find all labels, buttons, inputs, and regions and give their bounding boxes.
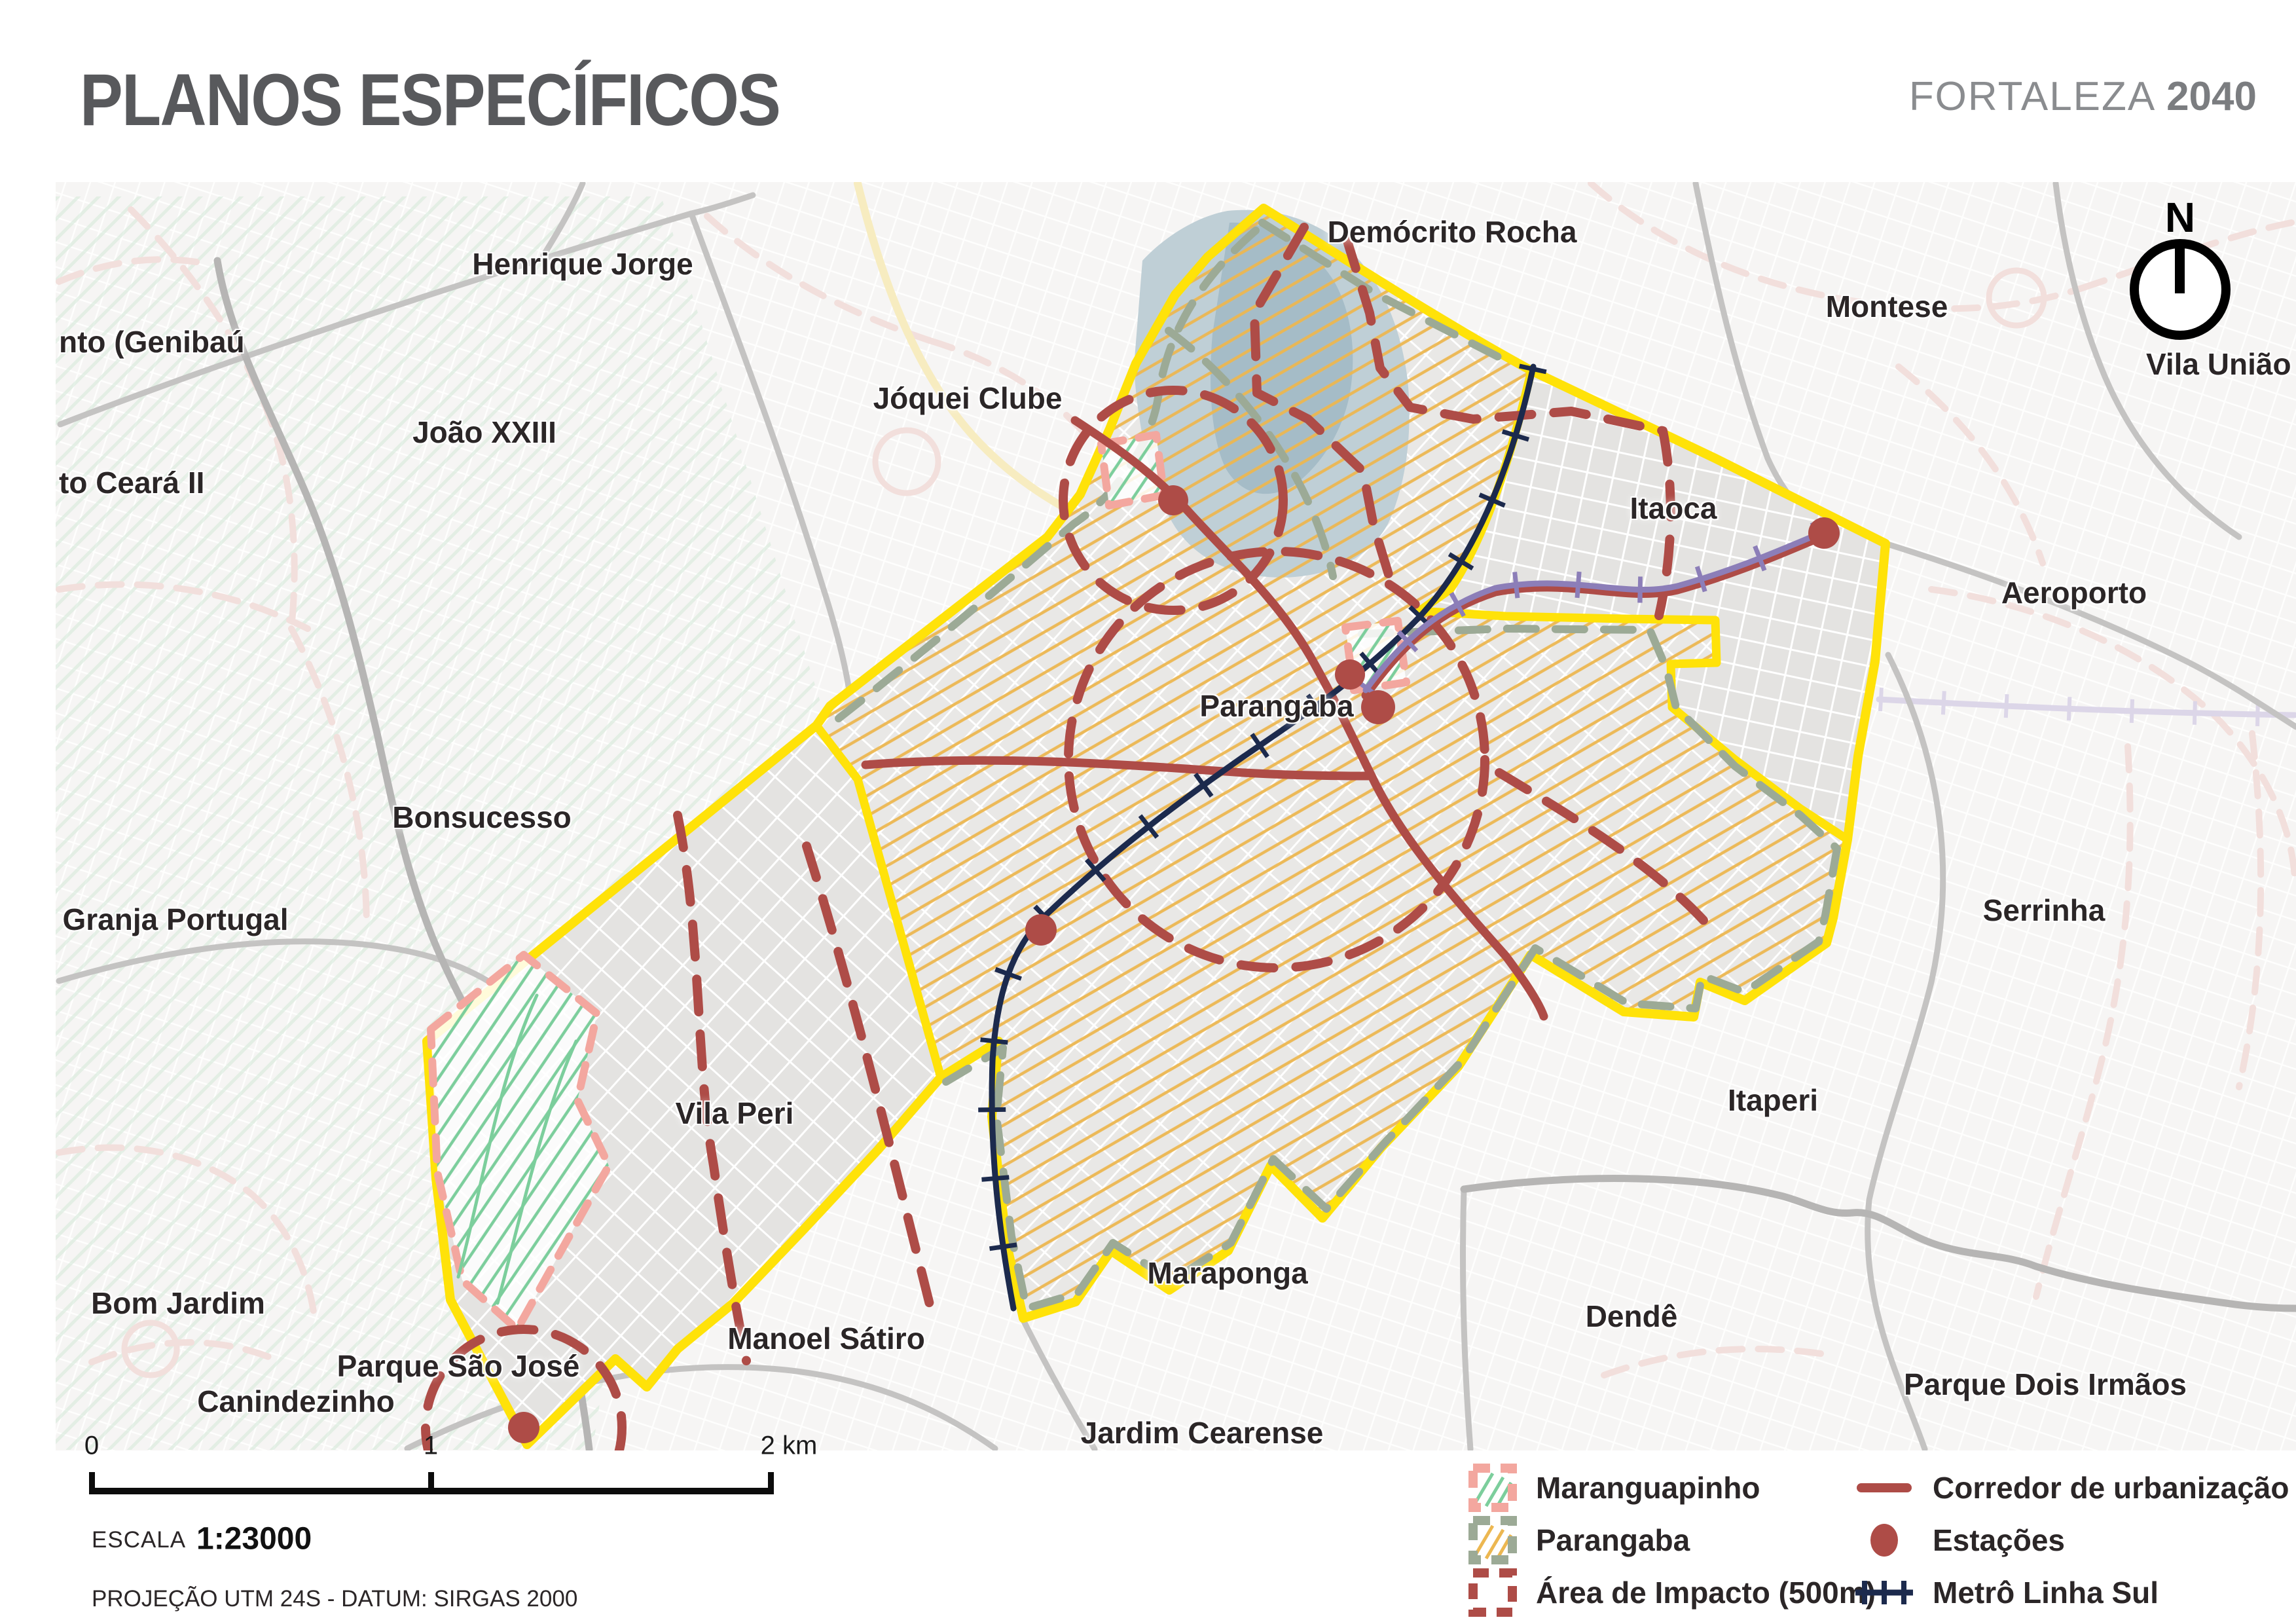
page-title: PLANOS ESPECÍFICOS: [80, 58, 780, 142]
parangaba-swatch-icon: [1467, 1514, 1519, 1566]
map-label-vila-uni-o: Vila União: [2146, 346, 2291, 382]
scalebar-tick-1: 1: [424, 1431, 438, 1461]
projection-text: PROJEÇÃO UTM 24S - DATUM: SIRGAS 2000: [92, 1586, 577, 1612]
metro-swatch-icon: [1853, 1566, 1916, 1619]
scalebar-tickmark: [768, 1472, 774, 1494]
map-label-granja-portugal: Granja Portugal: [62, 902, 288, 937]
map-label-bom-jardim: Bom Jardim: [91, 1285, 265, 1321]
impacto-swatch-icon: [1467, 1566, 1519, 1619]
legend-row-parangaba: Parangaba: [1467, 1514, 1690, 1566]
scale-value: 1:23000: [196, 1521, 312, 1557]
scalebar-tick-0: 0: [84, 1431, 99, 1461]
maranguapinho-swatch-icon: [1467, 1462, 1519, 1514]
legend-label: Corredor de urbanização: [1933, 1470, 2289, 1505]
brand-name: FORTALEZA: [1909, 74, 2154, 119]
legend-row-metro: Metrô Linha Sul: [1853, 1566, 2159, 1619]
map-label-j-quei-clube: Jóquei Clube: [873, 380, 1063, 416]
legend-row-corredor: Corredor de urbanização: [1853, 1462, 2289, 1514]
map-label-montese: Montese: [1826, 289, 1948, 324]
brand-logo: FORTALEZA 2040: [1909, 73, 2257, 120]
legend-label: Parangaba: [1536, 1522, 1690, 1558]
legend-label: Área de Impacto (500m): [1536, 1575, 1876, 1610]
scalebar-tickmark: [428, 1472, 434, 1494]
map-label-nto-geniba-: nto (Genibaú: [59, 324, 245, 360]
map-label-to-cear-ii: to Ceará II: [59, 465, 204, 500]
brand-year: 2040: [2166, 74, 2257, 119]
map-label-serrinha: Serrinha: [1983, 893, 2105, 928]
legend-row-maranguapinho: Maranguapinho: [1467, 1462, 1760, 1514]
map-label-dend-: Dendê: [1586, 1299, 1678, 1334]
map-label-henrique-jorge: Henrique Jorge: [472, 246, 693, 282]
map-label-canindezinho: Canindezinho: [197, 1384, 395, 1419]
legend-label: Metrô Linha Sul: [1933, 1575, 2159, 1610]
legend-row-estacoes: Estações: [1853, 1514, 2065, 1566]
map-label-aeroporto: Aeroporto: [2001, 575, 2147, 610]
map-label-maraponga: Maraponga: [1147, 1255, 1307, 1291]
map-label-parangaba: Parangaba: [1199, 688, 1353, 724]
legend-row-impacto: Área de Impacto (500m): [1467, 1566, 1876, 1619]
legend-label: Maranguapinho: [1536, 1470, 1760, 1505]
north-arrow-icon: [2134, 244, 2226, 335]
map-label-dem-crito-rocha: Demócrito Rocha: [1328, 214, 1577, 249]
map-label-bonsucesso: Bonsucesso: [392, 800, 572, 835]
scale-label: ESCALA: [92, 1527, 186, 1553]
north-label: N: [2165, 193, 2195, 242]
page: Henrique Jorgento (GenibaúJoão XXIIIto C…: [0, 0, 2296, 1624]
map-label-itaperi: Itaperi: [1728, 1082, 1818, 1118]
map-label-vila-peri: Vila Peri: [676, 1096, 794, 1131]
legend-label: Estações: [1933, 1522, 2065, 1558]
map-label-jardim-cearense: Jardim Cearense: [1081, 1415, 1324, 1450]
corredor-swatch-icon: [1853, 1462, 1916, 1514]
map-label-manoel-s-tiro: Manoel Sátiro: [727, 1321, 925, 1356]
map-label-itaoca: Itaoca: [1630, 490, 1717, 526]
scalebar-tick-2: 2 km: [761, 1431, 818, 1461]
map-label-parque-s-o-jos-: Parque São José: [337, 1348, 580, 1384]
estacoes-swatch-icon: [1853, 1514, 1916, 1566]
map-label-jo-o-xxiii: João XXIII: [412, 415, 556, 450]
map-label-parque-dois-irm-os: Parque Dois Irmãos: [1904, 1367, 2187, 1402]
scalebar-tickmark: [89, 1472, 95, 1494]
